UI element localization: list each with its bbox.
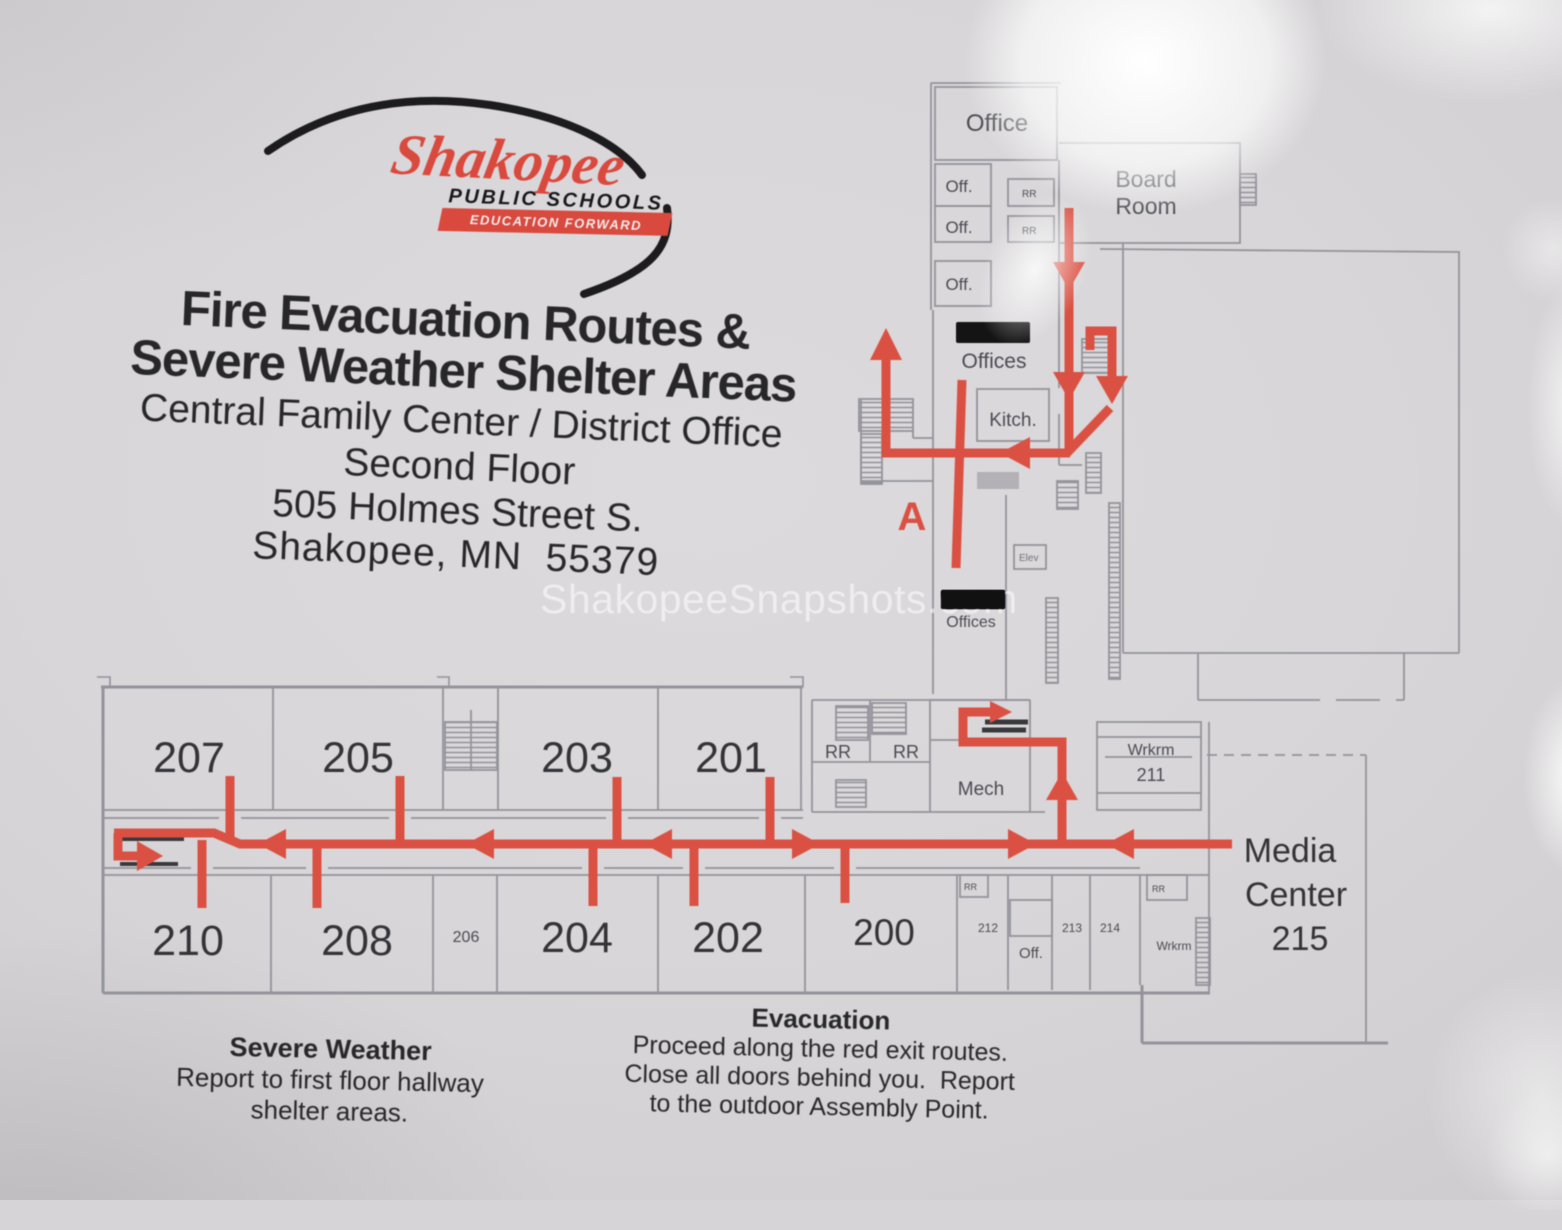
svg-text:207: 207 [153,734,225,782]
svg-text:200: 200 [853,912,915,953]
svg-text:211: 211 [1137,765,1166,785]
svg-text:210: 210 [152,917,224,965]
svg-text:206: 206 [453,929,480,946]
svg-text:Offices: Offices [962,350,1027,373]
svg-text:RR: RR [893,742,919,762]
svg-text:Mech: Mech [958,779,1004,800]
svg-text:Wrkrm: Wrkrm [1128,742,1175,759]
svg-text:Kitch.: Kitch. [989,410,1037,431]
svg-text:205: 205 [322,734,394,782]
svg-text:Off.: Off. [945,275,972,294]
svg-text:Off.: Off. [1019,945,1043,962]
svg-text:Room: Room [1115,193,1176,219]
svg-text:Center: Center [1245,876,1347,914]
svg-text:RR: RR [1022,226,1036,237]
svg-text:213: 213 [1062,921,1082,935]
svg-text:203: 203 [541,734,613,782]
svg-text:Wrkrm: Wrkrm [1156,939,1191,953]
svg-text:RR: RR [825,742,851,762]
svg-text:Elev: Elev [1019,553,1038,564]
svg-text:208: 208 [321,917,393,965]
svg-text:RR: RR [1152,884,1165,894]
svg-text:201: 201 [695,734,767,782]
svg-text:215: 215 [1272,920,1329,958]
svg-text:Media: Media [1244,832,1337,870]
svg-text:202: 202 [692,914,764,962]
svg-text:204: 204 [541,914,613,962]
svg-text:Office: Office [966,110,1028,137]
svg-text:RR: RR [964,882,977,892]
svg-text:RR: RR [1022,189,1036,200]
svg-text:Board: Board [1115,166,1176,192]
svg-text:A: A [898,495,927,539]
svg-text:Off.: Off. [945,218,972,237]
svg-text:Off.: Off. [945,177,972,196]
svg-text:214: 214 [1100,921,1120,935]
svg-text:212: 212 [978,921,998,935]
